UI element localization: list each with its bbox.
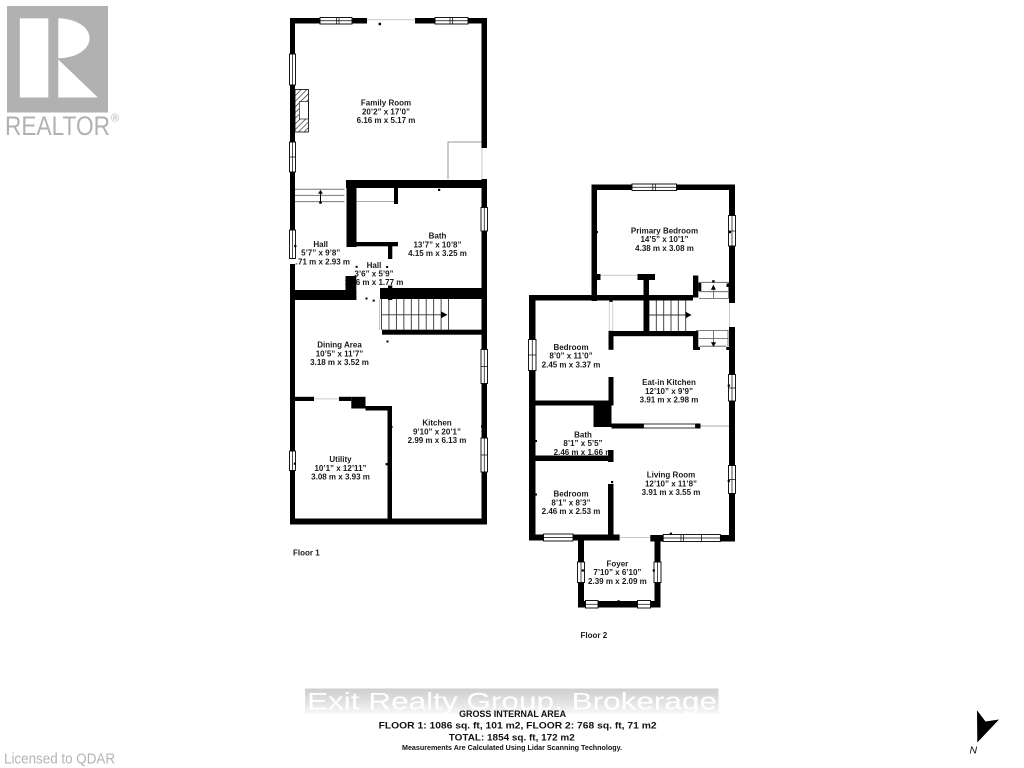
svg-text:®: ® bbox=[111, 113, 119, 125]
svg-text:8’1” x 5’5”: 8’1” x 5’5” bbox=[563, 439, 602, 448]
svg-text:20’2” x 17’0”: 20’2” x 17’0” bbox=[362, 107, 410, 116]
svg-text:2.39 m x 2.09 m: 2.39 m x 2.09 m bbox=[588, 577, 647, 586]
svg-text:3.91 m x 3.55 m: 3.91 m x 3.55 m bbox=[642, 488, 701, 497]
svg-text:Measurements Are Calculated Us: Measurements Are Calculated Using Lidar … bbox=[402, 743, 622, 752]
svg-text:Bath: Bath bbox=[574, 431, 592, 440]
svg-text:N: N bbox=[970, 745, 978, 757]
svg-text:Bath: Bath bbox=[429, 232, 447, 241]
svg-text:4.15 m x 3.25 m: 4.15 m x 3.25 m bbox=[408, 249, 467, 258]
svg-text:Floor 2: Floor 2 bbox=[581, 631, 608, 640]
svg-text:12’10” x 11’8”: 12’10” x 11’8” bbox=[645, 479, 697, 488]
svg-text:Family Room: Family Room bbox=[361, 99, 411, 108]
svg-text:Dining Area: Dining Area bbox=[317, 341, 362, 350]
svg-text:Eat-in Kitchen: Eat-in Kitchen bbox=[642, 378, 696, 387]
svg-text:9’10” x 20’1”: 9’10” x 20’1” bbox=[413, 427, 461, 436]
svg-text:1.71 m x 2.93 m: 1.71 m x 2.93 m bbox=[291, 257, 350, 266]
svg-text:10’5” x 11’7”: 10’5” x 11’7” bbox=[316, 349, 364, 358]
svg-text:4.38 m x 3.08 m: 4.38 m x 3.08 m bbox=[635, 244, 694, 253]
svg-text:10’1” x 12’11”: 10’1” x 12’11” bbox=[314, 464, 366, 473]
svg-text:3.91 m x 2.98 m: 3.91 m x 2.98 m bbox=[640, 396, 699, 405]
svg-text:2.46 m x 2.53 m: 2.46 m x 2.53 m bbox=[542, 507, 601, 516]
svg-text:GROSS INTERNAL AREA: GROSS INTERNAL AREA bbox=[459, 709, 566, 720]
svg-text:Hall: Hall bbox=[367, 261, 382, 270]
svg-text:Foyer: Foyer bbox=[607, 560, 629, 569]
svg-text:Licensed to QDAR: Licensed to QDAR bbox=[4, 751, 115, 768]
svg-text:13’7” x 10’8”: 13’7” x 10’8” bbox=[413, 240, 461, 249]
svg-text:2.45 m x 3.37 m: 2.45 m x 3.37 m bbox=[542, 360, 601, 369]
svg-text:14’5” x 10’1”: 14’5” x 10’1” bbox=[640, 235, 688, 244]
svg-text:8’1” x 8’3”: 8’1” x 8’3” bbox=[551, 498, 590, 507]
svg-text:Bedroom: Bedroom bbox=[553, 343, 588, 352]
svg-text:8’0” x 11’0”: 8’0” x 11’0” bbox=[549, 352, 592, 361]
svg-text:3.08 m x 3.93 m: 3.08 m x 3.93 m bbox=[311, 473, 370, 482]
svg-text:Utility: Utility bbox=[329, 455, 352, 464]
svg-text:3.18 m x 3.52 m: 3.18 m x 3.52 m bbox=[310, 358, 369, 367]
svg-text:7’10” x 6’10”: 7’10” x 6’10” bbox=[593, 568, 641, 577]
svg-text:5’7” x 9’8”: 5’7” x 9’8” bbox=[301, 249, 340, 258]
svg-text:Living Room: Living Room bbox=[647, 471, 695, 480]
svg-text:2.99 m x 6.13 m: 2.99 m x 6.13 m bbox=[408, 436, 467, 445]
svg-text:Floor 1: Floor 1 bbox=[293, 548, 320, 557]
svg-text:Bedroom: Bedroom bbox=[553, 490, 588, 499]
svg-text:REALTOR: REALTOR bbox=[5, 111, 110, 141]
svg-text:Primary Bedroom: Primary Bedroom bbox=[631, 226, 698, 235]
svg-text:Hall: Hall bbox=[313, 240, 328, 249]
svg-text:FLOOR 1: 1086 sq. ft, 101 m2,: FLOOR 1: 1086 sq. ft, 101 m2, FLOOR 2: 7… bbox=[379, 721, 657, 732]
svg-text:3’6” x 5’9”: 3’6” x 5’9” bbox=[354, 270, 393, 279]
svg-text:12’10” x 9’9”: 12’10” x 9’9” bbox=[645, 387, 693, 396]
svg-text:6.16 m x 5.17 m: 6.16 m x 5.17 m bbox=[357, 116, 416, 125]
svg-text:TOTAL: 1854 sq. ft, 172 m2: TOTAL: 1854 sq. ft, 172 m2 bbox=[449, 732, 575, 743]
svg-text:Kitchen: Kitchen bbox=[422, 419, 451, 428]
